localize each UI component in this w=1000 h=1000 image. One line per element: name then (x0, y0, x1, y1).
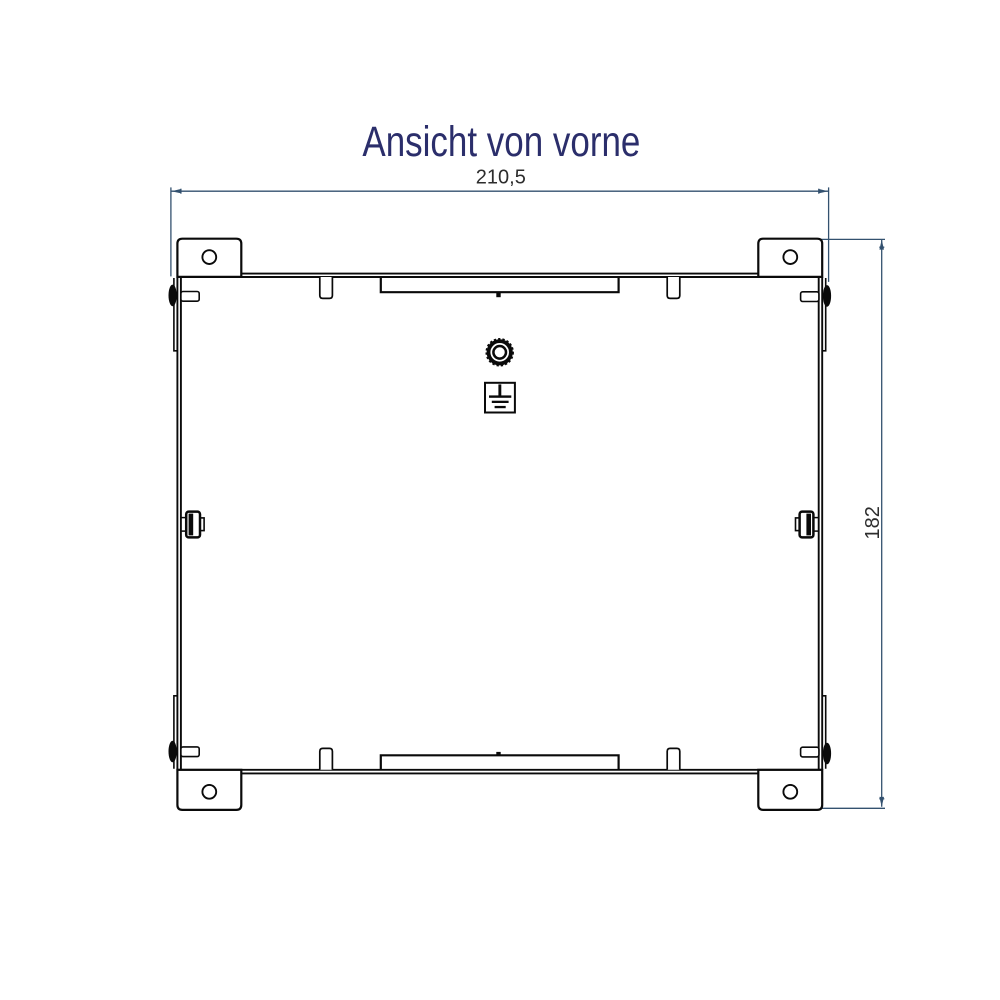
svg-text:182: 182 (862, 506, 884, 539)
svg-text:Ansicht von vorne: Ansicht von vorne (362, 119, 640, 166)
svg-text:210,5: 210,5 (476, 166, 526, 188)
